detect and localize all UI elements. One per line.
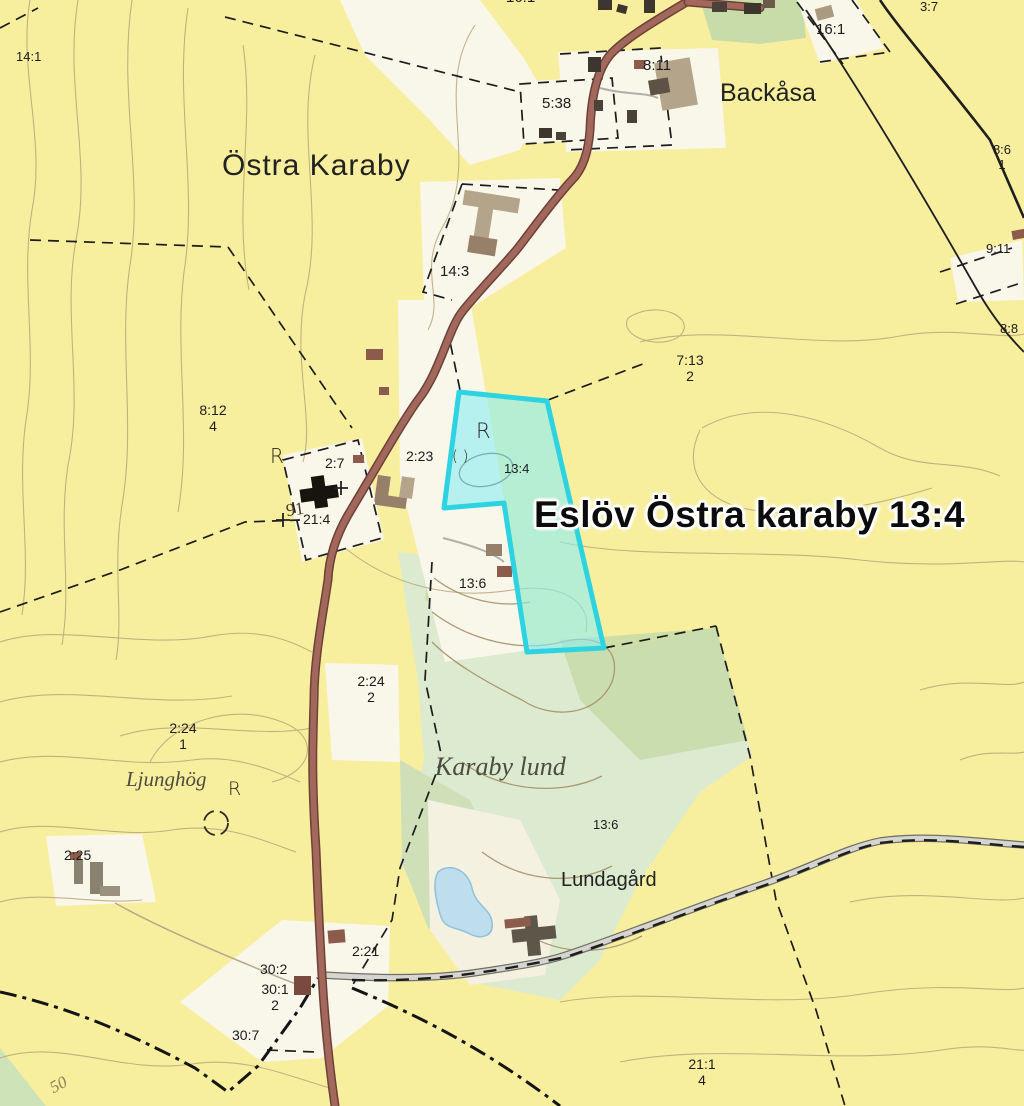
parcel-label-30-7: 30:7 — [232, 1028, 259, 1043]
parcel-label-16-1: 16:1 — [816, 22, 845, 38]
parcel-label-8-6: 8:6 1 — [984, 143, 1020, 173]
parcel-label-8-8: 8:8 — [1000, 322, 1018, 336]
parcel-label-21-1-bottom: 4 — [680, 1072, 724, 1088]
parcel-label-7-13-bottom: 2 — [668, 368, 712, 384]
parcel-label-30-1-bottom: 2 — [252, 997, 298, 1013]
parcel-label-2-21: 2:21 — [352, 944, 379, 959]
parcel-label-2-25: 2:25 — [64, 848, 91, 863]
placename-backasa: Backåsa — [720, 80, 816, 106]
placename-ljunghog: Ljunghög — [126, 768, 207, 790]
parcel-label-13-6-north: 13:6 — [459, 576, 486, 591]
ancient-monument-icon: R — [270, 446, 284, 467]
parcel-label-2-24-2-bottom: 2 — [348, 689, 394, 705]
parcel-label-2-24-1-top: 2:24 — [160, 720, 206, 736]
parcel-label-30-2: 30:2 — [260, 962, 287, 977]
placename-lundagard: Lundagård — [561, 870, 657, 891]
map-drawing — [0, 0, 1024, 1106]
parcel-label-9-11: 9:11 — [986, 242, 1010, 256]
parcel-label-14-1: 14:1 — [16, 50, 41, 64]
parcel-label-2-7: 2:7 — [325, 456, 344, 471]
parcel-label-2-24-2: 2:24 2 — [348, 673, 394, 705]
enclosure-symbol-icon: ( ) — [452, 449, 468, 465]
parcel-label-16-1-top: 16:1 — [506, 0, 535, 6]
parcel-label-8-11: 8:11 — [643, 58, 671, 74]
parcel-label-14-3: 14:3 — [440, 264, 469, 280]
parcel-label-5-38: 5:38 — [542, 96, 571, 112]
parcel-label-2-24-1-bottom: 1 — [160, 736, 206, 752]
parcel-label-21-1-top: 21:1 — [680, 1056, 724, 1072]
parcel-label-13-4: 13:4 — [504, 462, 529, 476]
parcel-label-13-6-south: 13:6 — [593, 818, 618, 832]
parcel-label-30-1-top: 30:1 — [252, 981, 298, 997]
map-canvas: 14:1 Östra Karaby 16:1 3:7 5:38 8:11 Bac… — [0, 0, 1024, 1106]
parcel-label-8-12-bottom: 4 — [190, 418, 236, 434]
parcel-label-2-23: 2:23 — [406, 449, 433, 464]
parcel-label-8-6-bottom: 1 — [984, 158, 1020, 173]
placename-ostra-karaby: Östra Karaby — [222, 150, 411, 182]
parcel-label-21-1: 21:1 4 — [680, 1056, 724, 1088]
parcel-label-3-7: 3:7 — [920, 0, 938, 14]
parcel-label-8-6-top: 8:6 — [984, 143, 1020, 158]
parcel-label-2-24-2-top: 2:24 — [348, 673, 394, 689]
parcel-label-30-1: 30:1 2 — [252, 981, 298, 1013]
parcel-label-8-12: 8:12 4 — [190, 402, 236, 434]
map-title-overlay: Eslöv Östra karaby 13:4 — [534, 494, 965, 536]
parcel-label-7-13: 7:13 2 — [668, 352, 712, 384]
parcel-label-21-4: 21:4 — [303, 512, 330, 527]
placename-karaby-lund: Karaby lund — [435, 753, 566, 780]
ancient-monument-icon: R — [228, 780, 241, 800]
parcel-label-2-24-1: 2:24 1 — [160, 720, 206, 752]
parcel-label-8-12-top: 8:12 — [190, 402, 236, 418]
parcel-label-7-13-top: 7:13 — [668, 352, 712, 368]
ancient-monument-icon: R — [476, 420, 491, 442]
